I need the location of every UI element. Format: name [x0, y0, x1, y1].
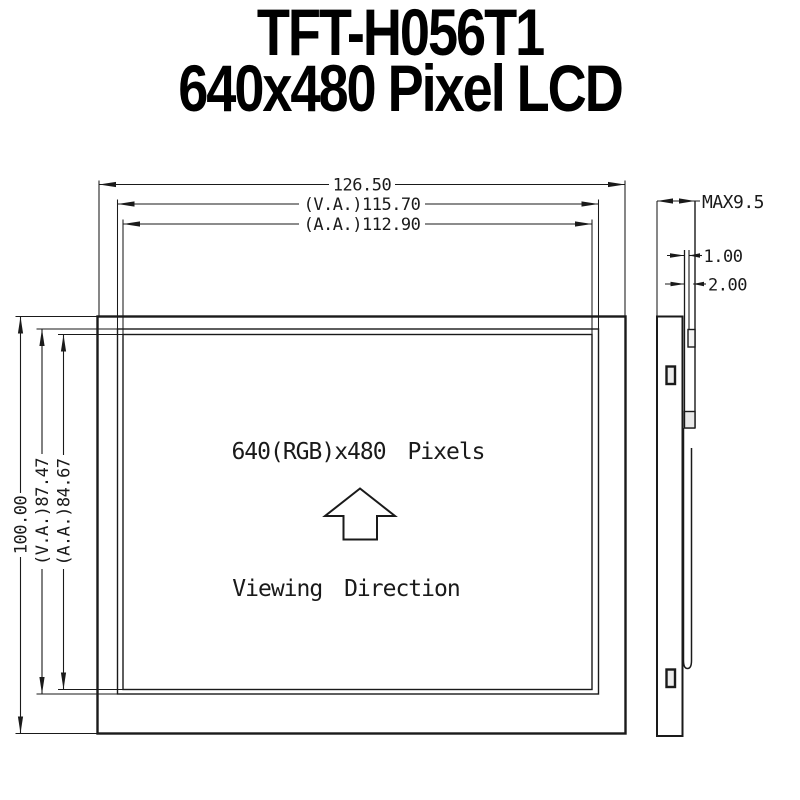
- dimension-arrowhead: [608, 182, 625, 187]
- body-lower-boss: [667, 670, 676, 688]
- dimension-arrowhead: [123, 221, 140, 226]
- fpc-tail-loop: [684, 428, 692, 669]
- dimension-arrowhead: [61, 673, 66, 690]
- dimension-arrowhead: [657, 198, 673, 203]
- dimension-arrowhead: [118, 201, 135, 206]
- dim-height-viewing-area: (V.A.)87.47: [33, 329, 118, 694]
- glass-top-pad: [688, 330, 695, 348]
- dim-thickness-label: MAX9.5: [702, 192, 764, 213]
- viewing-direction-up-arrow-icon: [325, 489, 395, 540]
- lcd-dimension-drawing: TFT-H056T1 640x480 Pixel LCD 126.50: [0, 0, 800, 800]
- dim-front-glass: 1.00: [667, 247, 743, 267]
- dimension-arrowhead: [99, 182, 116, 187]
- dimension-arrowhead: [671, 282, 685, 287]
- dim-front-glass-label: 1.00: [704, 247, 743, 267]
- dimension-arrowhead: [18, 717, 23, 734]
- dim-panel-label: 2.00: [708, 276, 747, 296]
- dimension-arrowhead: [39, 677, 44, 694]
- glass-bottom-pad: [685, 412, 696, 429]
- side-view: MAX9.5 1.00 2.00: [657, 192, 764, 736]
- body-upper-boss: [667, 367, 676, 385]
- dim-panel: 2.00: [665, 276, 747, 296]
- dimension-arrowhead: [670, 253, 685, 258]
- dimension-arrowhead: [39, 329, 44, 346]
- dim-height-aa-label: (A.A.)84.67: [55, 458, 75, 565]
- dimension-arrowhead: [575, 221, 592, 226]
- viewing-direction-label: Viewing Direction: [232, 576, 459, 602]
- dim-height-va-label: (V.A.)87.47: [33, 458, 53, 565]
- dimension-arrowhead: [18, 317, 23, 334]
- pixel-format-label: 640(RGB)x480 Pixels: [231, 439, 484, 465]
- dim-height-active-area: (A.A.)84.67: [55, 335, 124, 690]
- dim-width-overall-label: 126.50: [333, 176, 392, 196]
- dimension-arrowhead: [61, 335, 66, 352]
- dim-width-va-label: (V.A.)115.70: [304, 195, 421, 215]
- dim-thickness-max: MAX9.5: [657, 192, 764, 213]
- dim-width-aa-label: (A.A.)112.90: [304, 215, 421, 235]
- dim-height-overall-label: 100.00: [12, 496, 32, 555]
- dimension-arrowhead: [582, 201, 599, 206]
- front-view: 126.50 (V.A.)115.70 (A.A.)112.90: [12, 176, 626, 734]
- dimension-arrowhead: [679, 198, 695, 203]
- drawing-sheet: 126.50 (V.A.)115.70 (A.A.)112.90: [0, 0, 800, 800]
